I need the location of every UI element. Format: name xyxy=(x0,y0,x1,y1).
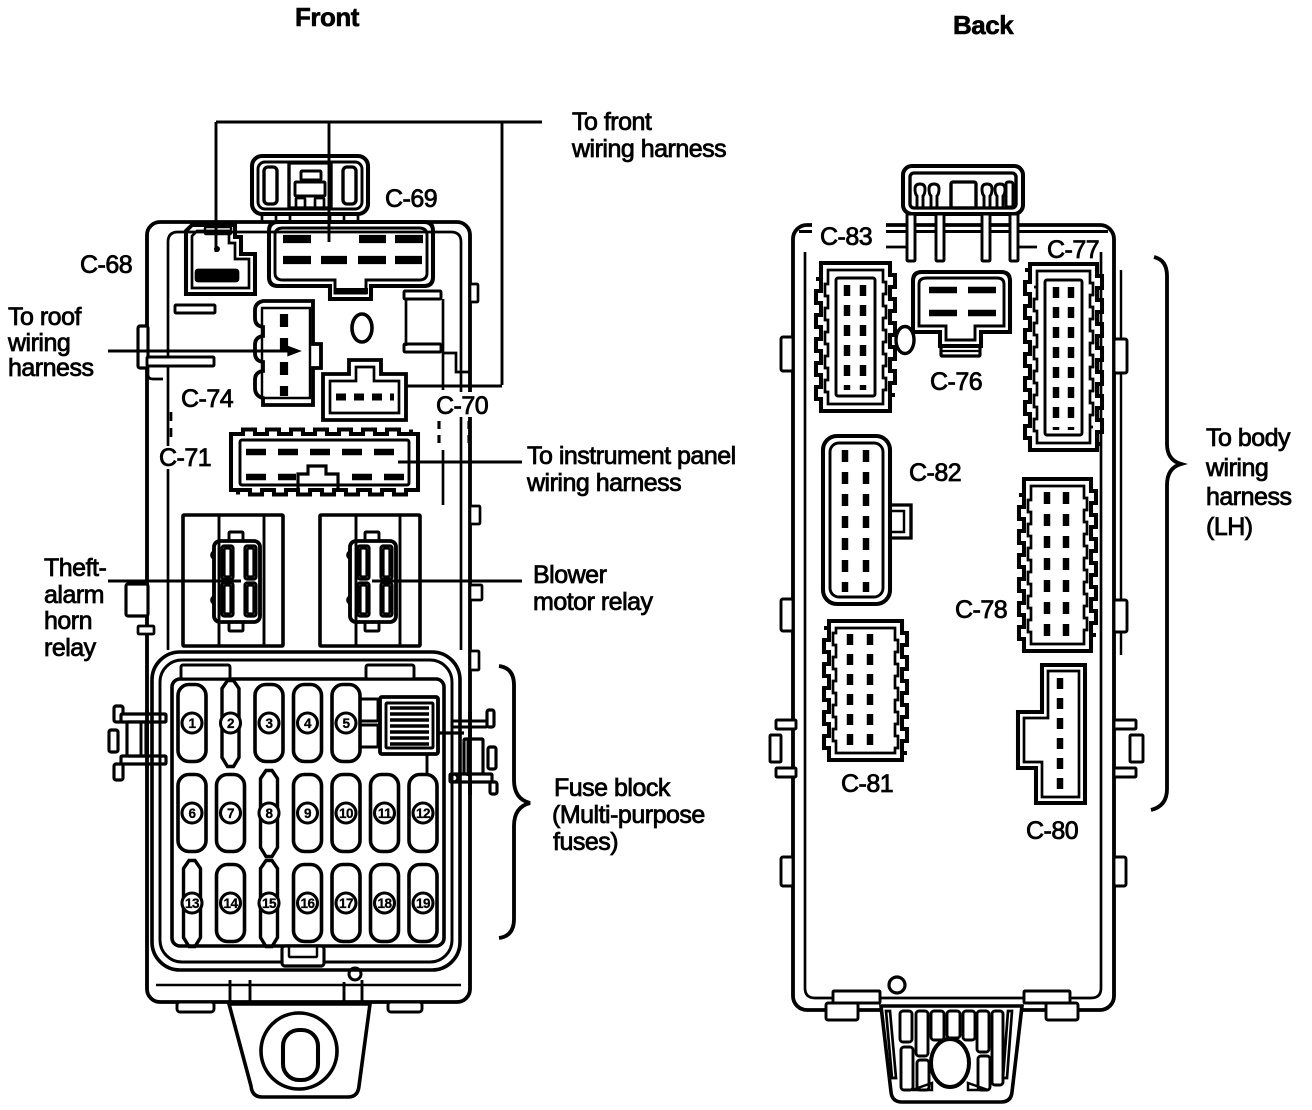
svg-text:6: 6 xyxy=(188,806,196,821)
svg-text:12: 12 xyxy=(416,806,430,821)
svg-text:5: 5 xyxy=(342,716,350,731)
svg-text:wiring: wiring xyxy=(1205,454,1268,482)
svg-text:harness: harness xyxy=(1206,483,1291,511)
svg-text:To roof: To roof xyxy=(8,303,81,331)
svg-text:10: 10 xyxy=(339,806,353,821)
svg-text:(Multi-purpose: (Multi-purpose xyxy=(552,801,705,829)
svg-text:C-68: C-68 xyxy=(80,251,132,279)
svg-text:C-82: C-82 xyxy=(909,459,961,487)
svg-text:C-81: C-81 xyxy=(841,770,893,798)
svg-text:Fuse block: Fuse block xyxy=(554,774,671,802)
svg-text:C-78: C-78 xyxy=(955,596,1007,624)
svg-text:Theft-: Theft- xyxy=(44,554,106,582)
svg-text:wiring harness: wiring harness xyxy=(571,135,726,163)
svg-text:3: 3 xyxy=(265,716,273,731)
svg-text:19: 19 xyxy=(416,896,430,911)
svg-text:C-77: C-77 xyxy=(1047,236,1099,264)
svg-text:18: 18 xyxy=(377,896,392,911)
svg-text:alarm: alarm xyxy=(44,581,104,609)
svg-text:To body: To body xyxy=(1206,424,1291,452)
svg-text:1: 1 xyxy=(188,716,196,731)
svg-text:relay: relay xyxy=(44,634,97,662)
svg-text:(LH): (LH) xyxy=(1206,513,1253,541)
svg-text:wiring: wiring xyxy=(7,329,70,357)
svg-text:14: 14 xyxy=(223,896,238,911)
svg-text:horn: horn xyxy=(44,607,92,635)
svg-text:13: 13 xyxy=(185,896,200,911)
svg-text:17: 17 xyxy=(339,896,353,911)
svg-text:C-69: C-69 xyxy=(385,185,437,213)
svg-text:C-71: C-71 xyxy=(159,444,211,472)
svg-text:7: 7 xyxy=(227,806,234,821)
svg-text:4: 4 xyxy=(304,716,312,731)
svg-text:C-70: C-70 xyxy=(436,392,488,420)
svg-text:fuses): fuses) xyxy=(553,828,618,856)
svg-text:wiring harness: wiring harness xyxy=(526,469,681,497)
svg-text:Back: Back xyxy=(953,10,1014,40)
svg-text:To front: To front xyxy=(572,108,652,136)
svg-text:11: 11 xyxy=(378,806,392,821)
svg-text:9: 9 xyxy=(304,806,311,821)
svg-text:C-83: C-83 xyxy=(820,223,872,251)
svg-text:15: 15 xyxy=(262,896,277,911)
svg-text:16: 16 xyxy=(300,896,315,911)
svg-text:harness: harness xyxy=(8,354,93,382)
svg-text:C-80: C-80 xyxy=(1026,817,1078,845)
svg-text:To instrument panel: To instrument panel xyxy=(527,442,736,470)
svg-text:Front: Front xyxy=(295,2,360,32)
svg-text:motor relay: motor relay xyxy=(533,588,654,616)
svg-text:8: 8 xyxy=(265,806,273,821)
svg-text:C-74: C-74 xyxy=(181,385,234,413)
svg-text:C-76: C-76 xyxy=(930,368,982,396)
svg-text:2: 2 xyxy=(227,716,234,731)
svg-text:Blower: Blower xyxy=(533,561,607,589)
